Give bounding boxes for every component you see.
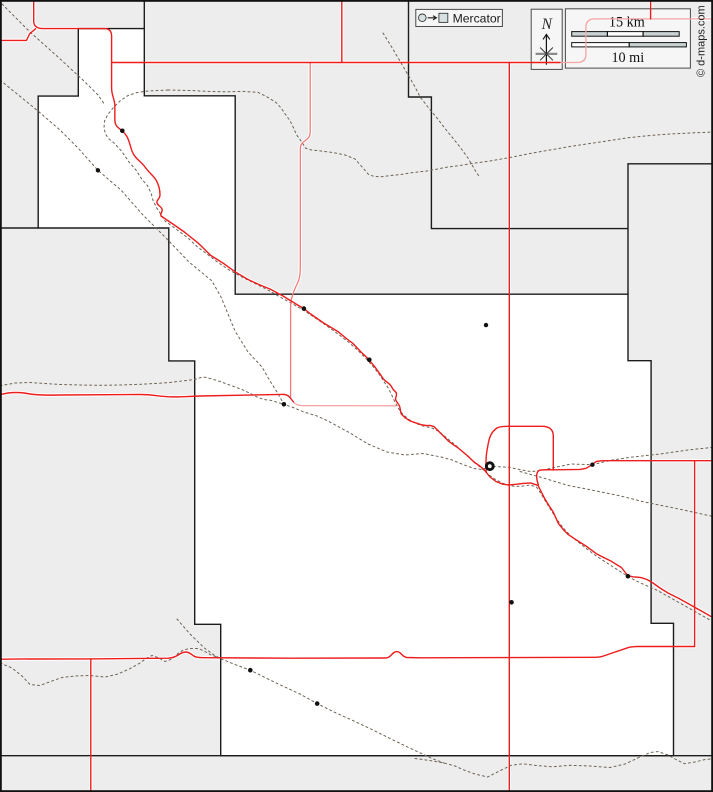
svg-text:10 mi: 10 mi [611,50,644,66]
svg-text:© d-maps.com: © d-maps.com [696,5,708,77]
svg-text:15 km: 15 km [609,14,645,30]
svg-text:Mercator: Mercator [453,11,501,25]
svg-text:N: N [541,16,554,33]
